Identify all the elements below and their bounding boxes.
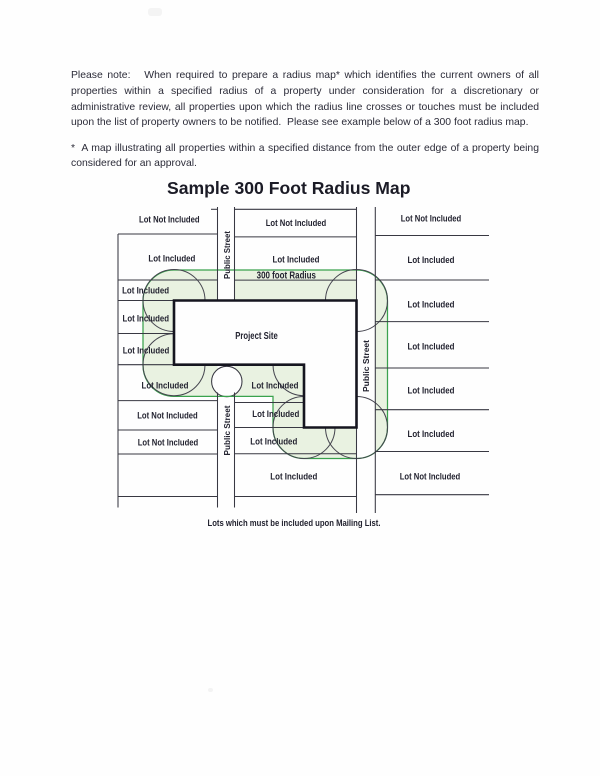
svg-text:Lot Not Included: Lot Not Included — [139, 214, 200, 225]
svg-text:Lot Included: Lot Included — [252, 408, 299, 419]
svg-text:Lot Not Included: Lot Not Included — [400, 470, 461, 481]
svg-text:Public Street: Public Street — [222, 231, 232, 279]
svg-text:Lot Not Included: Lot Not Included — [138, 436, 199, 447]
svg-text:Lot Not Included: Lot Not Included — [266, 217, 327, 228]
svg-text:Lot Included: Lot Included — [148, 252, 195, 263]
svg-text:Lot Included: Lot Included — [270, 470, 317, 481]
svg-text:300 foot Radius: 300 foot Radius — [257, 271, 317, 282]
svg-text:Lot Included: Lot Included — [408, 298, 455, 309]
svg-text:Lot Included: Lot Included — [252, 379, 299, 390]
svg-text:Public Street: Public Street — [361, 340, 371, 392]
svg-text:Lot Not Included: Lot Not Included — [137, 409, 198, 420]
svg-text:Public Street: Public Street — [222, 405, 232, 455]
svg-text:Lot Not Included: Lot Not Included — [401, 212, 462, 223]
svg-text:Lot Included: Lot Included — [142, 379, 189, 390]
svg-text:Lot Included: Lot Included — [408, 428, 455, 439]
svg-text:Lot Included: Lot Included — [122, 284, 169, 295]
svg-text:Lot Included: Lot Included — [123, 312, 170, 323]
svg-text:Lot Included: Lot Included — [408, 254, 455, 265]
svg-text:Lot Included: Lot Included — [273, 253, 320, 264]
svg-text:Lot Included: Lot Included — [123, 344, 170, 355]
svg-text:Lot Included: Lot Included — [250, 435, 297, 446]
svg-text:Lot Included: Lot Included — [408, 340, 455, 351]
svg-text:Project Site: Project Site — [235, 331, 278, 342]
svg-text:Lots which must be included up: Lots which must be included upon Mailing… — [208, 517, 381, 528]
svg-text:Lot Included: Lot Included — [408, 384, 455, 395]
